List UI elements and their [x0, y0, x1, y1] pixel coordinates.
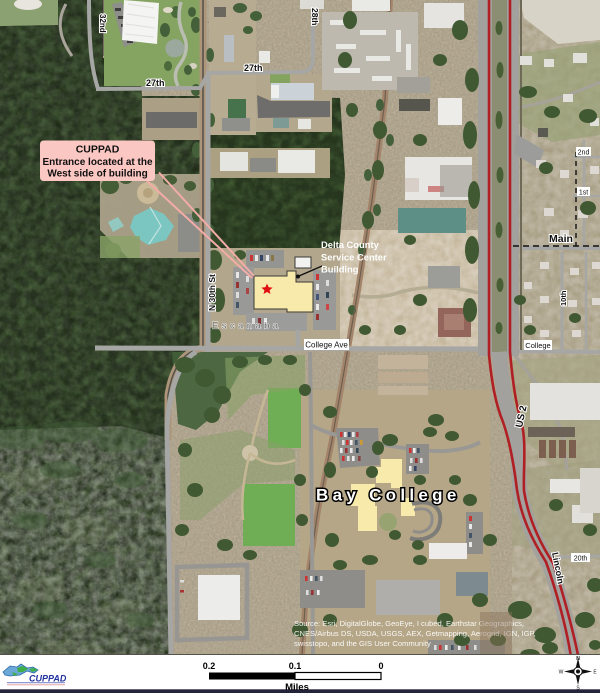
svg-text:20th: 20th: [574, 556, 588, 563]
svg-text:Delta County: Delta County: [321, 239, 380, 250]
svg-text:27th: 27th: [146, 78, 165, 88]
svg-text:Building: Building: [321, 264, 359, 275]
svg-text:32nd: 32nd: [98, 14, 107, 33]
svg-text:Main: Main: [549, 233, 573, 245]
svg-text:W: W: [559, 670, 564, 676]
svg-text:CUPPAD: CUPPAD: [29, 674, 67, 684]
svg-text:swisstopo, and the GIS User Co: swisstopo, and the GIS User Community: [294, 639, 431, 648]
svg-text:Entrance located at the: Entrance located at the: [42, 157, 152, 168]
svg-text:College: College: [525, 341, 550, 350]
svg-text:Escanaba: Escanaba: [212, 321, 281, 332]
svg-text:2nd: 2nd: [578, 150, 590, 157]
svg-text:27th: 27th: [244, 63, 263, 73]
svg-text:Miles: Miles: [285, 682, 309, 693]
svg-text:College Ave: College Ave: [305, 341, 348, 350]
svg-text:Bay College: Bay College: [316, 486, 461, 505]
svg-text:1st: 1st: [579, 190, 588, 197]
svg-text:0: 0: [378, 661, 383, 671]
svg-text:0.2: 0.2: [203, 661, 216, 671]
svg-text:0.1: 0.1: [289, 661, 302, 671]
svg-text:28th: 28th: [310, 8, 320, 25]
svg-text:CUPPAD: CUPPAD: [76, 144, 120, 156]
svg-text:Service Center: Service Center: [321, 252, 387, 263]
svg-text:N 30th St: N 30th St: [207, 274, 217, 311]
svg-text:10th: 10th: [559, 290, 568, 306]
svg-text:West side of building: West side of building: [47, 169, 147, 180]
svg-text:N: N: [576, 656, 580, 662]
